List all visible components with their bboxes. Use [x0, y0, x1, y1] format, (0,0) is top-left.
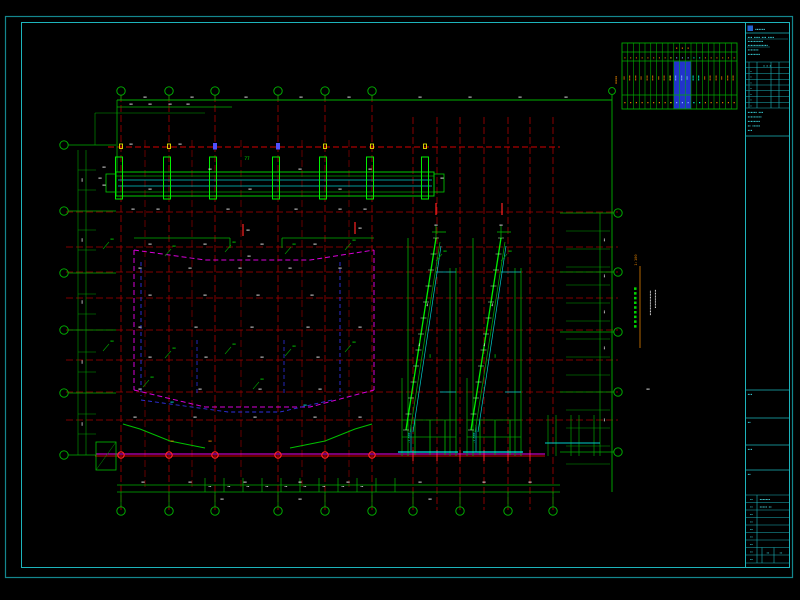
annotation-label: ▪▪	[244, 95, 248, 99]
annotation-label: ▪▪	[603, 346, 606, 350]
annotation-label: ▪▪	[102, 183, 106, 187]
annotation-label: ▪▪	[80, 300, 84, 304]
cell-text: ▪	[624, 101, 626, 105]
annotation-label: ▪▪	[303, 403, 307, 407]
tb-text: ▪▪	[750, 528, 753, 531]
summary-table: ▪▪▪▪▪▪▪▪▪▪▪▪▪▪▪▪▪▪▪▪▪▪▪▪▪▪▪▪▪▪▪▪▪▪▪▪▪▪▪▪…	[622, 43, 737, 109]
annotation-label: ▪▪	[188, 266, 192, 270]
cell-text: ▪▪▪	[674, 75, 678, 81]
cell-text: ▪	[693, 101, 695, 105]
cell-text: ▪▪▪	[645, 75, 649, 81]
annotation-label: ▪▪	[603, 274, 606, 278]
annotation-label: ▪▪	[440, 176, 444, 180]
tb-text: ▪▪	[780, 552, 783, 555]
annotation-label: ▪▪	[188, 480, 192, 484]
annotation-label: ▪▪	[248, 187, 252, 191]
annotation-label: ▪▪	[468, 95, 472, 99]
tb-text: ▪	[750, 104, 751, 107]
cell-text: ▪▪▪	[714, 75, 718, 81]
annotation-label: ▪▪	[204, 355, 208, 359]
cell-text: ▪	[727, 101, 729, 105]
annotation-label: ▪▪	[102, 165, 106, 169]
tb-text: ▪▪▪▪▪▪▪▪▪	[748, 116, 762, 119]
annotation-label: ▪▪	[226, 207, 230, 211]
tb-text: ▪▪	[767, 552, 770, 555]
annotation-label: ▪▪	[208, 167, 212, 171]
drawing-scale: 1:100	[633, 254, 638, 266]
annotation-label: ▪▪	[203, 293, 207, 297]
cell-text: ▪	[704, 101, 706, 105]
annotation-label: ▪▪	[418, 480, 422, 484]
support-marker	[213, 143, 217, 150]
annotation-label: ▪▪	[110, 237, 114, 241]
tb-text: ▪▪▪▪▪▪▪	[760, 498, 771, 501]
tb-text: ▪▪▪	[748, 448, 753, 451]
cell-text: ▪▪▪	[697, 75, 701, 81]
cell-text: ▪▪▪	[668, 75, 672, 81]
annotation-label: ▪▪	[143, 95, 147, 99]
annotation-label: ▪▪	[428, 354, 432, 358]
annotation-label: ▪▪	[603, 238, 606, 242]
annotation-label: ▪▪	[368, 167, 372, 171]
tb-text: ▪▪	[750, 543, 753, 546]
annotation-label: ▪▪	[156, 207, 160, 211]
tb-text: ▪▪▪▪▪▪▪▪	[748, 53, 761, 56]
drawing-title-vertical: ▪▪▪▪▪▪▪▪▪	[631, 286, 639, 328]
cell-text: ▪	[710, 101, 712, 105]
cell-text: ▪	[733, 101, 735, 105]
annotation-label: ▪▪	[133, 415, 137, 419]
tb-text: ▪▪▪▪▪▪▪▪▪▪	[748, 40, 764, 43]
cell-text: ▪	[681, 101, 683, 105]
annotation-label: ▪▪	[258, 387, 262, 391]
annotation-label: ▪▪	[260, 242, 264, 246]
tb-text: ▪▪	[750, 551, 753, 554]
tb-text: ▪	[750, 87, 751, 90]
tb-text: ▪▪▪	[748, 393, 753, 396]
annotation-label: ▪▪	[358, 415, 362, 419]
cell-text: ▪	[687, 46, 689, 50]
cell-text: ▪▪	[702, 76, 706, 80]
cell-text: ▪	[722, 101, 724, 105]
annotation-label: ▪▪	[138, 325, 142, 329]
annotation-label: ▪▪	[313, 415, 317, 419]
tb-text: ▪ ▪ ▪	[763, 65, 771, 68]
annotation-label: ▪▪	[288, 266, 292, 270]
cell-text: ▪	[716, 101, 718, 105]
tb-text: ▪▪ ▪▪▪▪▪	[748, 125, 761, 128]
cell-text: ▪▪▪	[628, 75, 632, 81]
annotation-label: ▪▪	[170, 439, 174, 443]
annotation-label: ▪▪	[358, 226, 362, 230]
tb-text: ▪	[750, 99, 751, 102]
annotation-label: ▪▪	[80, 360, 84, 364]
cell-text: ▪	[647, 101, 649, 105]
annotation-label: ▪▪	[131, 207, 135, 211]
tb-text: ▪▪▪▪▪ ▪▪	[760, 506, 773, 509]
annotation-label: ▪▪	[232, 342, 236, 346]
beam-mark: 77	[244, 156, 250, 162]
cell-text: ▪	[676, 46, 678, 50]
annotation-label: ▪▪	[294, 207, 298, 211]
annotation-label: ▪▪	[148, 355, 152, 359]
elevation-label-2: -1.500	[472, 432, 476, 443]
tb-text: ▪▪	[750, 521, 753, 524]
annotation-label: ▪▪	[338, 207, 342, 211]
cell-text: ▪	[670, 101, 672, 105]
annotation-label: ▪▪	[250, 325, 254, 329]
annotation-label: ▪▪	[138, 387, 142, 391]
annotation-label: ▪▪	[428, 497, 432, 501]
cell-text: ▪	[664, 101, 666, 105]
tb-text: ▪▪	[750, 513, 753, 516]
tb-text: ▪	[750, 93, 751, 96]
annotation-label: ▪▪	[186, 102, 190, 106]
annotation-label: ▪▪	[564, 95, 568, 99]
cell-text: ▪▪▪	[725, 75, 729, 81]
cell-text: ▪▪	[720, 76, 724, 80]
tb-text: ▪	[750, 76, 751, 79]
annotation-label: ▪▪	[129, 142, 133, 146]
annotation-label: ▪▪	[220, 497, 224, 501]
cell-text: ▪	[658, 101, 660, 105]
annotation-label: ▪▪	[193, 415, 197, 419]
tb-text: ▪▪▪▪▪▪ ▪▪▪	[748, 111, 764, 114]
annotation-label: ▪▪	[260, 377, 264, 381]
cell-text: ▪	[641, 101, 643, 105]
cell-text: ▪▪▪	[691, 75, 695, 81]
annotation-label: ▪▪	[299, 95, 303, 99]
annotation-label: ▪▪	[178, 142, 182, 146]
cell-text: ▪▪▪	[633, 75, 637, 81]
annotation-label: ▪▪	[352, 340, 356, 344]
annotation-label: ▪▪	[313, 242, 317, 246]
annotation-label: ▪▪	[347, 95, 351, 99]
tb-text: ▪	[750, 70, 751, 73]
annotation-label: ▪▪	[434, 223, 438, 227]
cell-text: ▪	[635, 101, 637, 105]
drawing-note-2: ▪▪▪▪▪▪▪▪▪▪▪▪	[654, 289, 657, 308]
cell-text: ▪▪▪	[731, 75, 735, 81]
annotation-label: ▪▪	[298, 497, 302, 501]
annotation-label: ▪▪	[246, 228, 250, 232]
elevation-label-1: -1.500	[407, 432, 411, 443]
annotation-label: ▪▪	[172, 346, 176, 350]
annotation-label: ▪▪	[253, 415, 257, 419]
cell-text: ▪▪	[622, 76, 626, 80]
annotation-label: ▪▪	[508, 249, 512, 253]
logo-icon	[748, 26, 754, 32]
tb-text: ▪▪▪ ▪▪▪▪ ▪▪▪ ▪▪▪▪	[748, 36, 775, 39]
annotation-label: ▪▪	[198, 387, 202, 391]
cell-text: ▪	[687, 101, 689, 105]
annotation-label: ▪▪	[260, 355, 264, 359]
drawing-note-1: ▪▪▪▪▪▪▪▪▪▪▪▪▪▪▪▪	[649, 290, 652, 315]
cell-text: ▪▪▪	[679, 75, 683, 81]
annotation-label: ▪▪	[232, 240, 236, 244]
tb-text: ▪▪	[750, 498, 753, 501]
logo-text: ▪▪▪▪▪▪	[755, 27, 765, 31]
tb-text: ▪▪	[750, 506, 753, 509]
annotation-label: ▪▪	[298, 480, 302, 484]
annotation-label: ▪▪	[518, 95, 522, 99]
annotation-label: ▪▪	[141, 480, 145, 484]
annotation-label: ▪▪	[318, 387, 322, 391]
annotation-label: ▪▪	[306, 325, 310, 329]
annotation-label: ▪▪	[98, 176, 102, 180]
annotation-label: ▪▪	[310, 293, 314, 297]
annotation-label: ▪▪	[208, 439, 212, 443]
annotation-label: ▪▪	[238, 266, 242, 270]
tb-text: ▪▪▪▪▪▪▪▪	[748, 120, 761, 123]
annotation-label: ▪▪	[168, 102, 172, 106]
cell-text: ▪	[681, 46, 683, 50]
annotation-label: ▪▪	[316, 355, 320, 359]
cell-text: ▪	[676, 101, 678, 105]
cell-text: ▪▪▪	[651, 75, 655, 81]
cell-text: ▪▪	[656, 76, 660, 80]
tb-text: ▪▪▪▪▪▪▪▪▪▪▪▪▪	[748, 44, 769, 47]
annotation-label: ▪▪	[203, 242, 207, 246]
cell-text: ▪	[653, 101, 655, 105]
annotation-label: ▪▪	[148, 187, 152, 191]
annotation-label: ▪▪	[172, 244, 176, 248]
cell-text: ▪▪	[685, 76, 689, 80]
tb-text: ▪▪	[750, 536, 753, 539]
tb-text: ▪	[750, 81, 751, 84]
annotation-label: ▪▪	[646, 387, 650, 391]
annotation-label: ▪▪	[292, 344, 296, 348]
annotation-label: ▪▪	[418, 95, 422, 99]
support-marker	[276, 143, 280, 150]
tb-text: ▪▪▪	[748, 129, 753, 132]
annotation-label: ▪▪	[482, 480, 486, 484]
annotation-label: ▪▪	[148, 242, 152, 246]
annotation-label: ▪▪	[499, 223, 503, 227]
annotation-label: ▪▪	[292, 242, 296, 246]
cad-drawing-canvas: ▪▪▪▪▪▪▪▪▪▪▪▪▪▪▪▪▪▪▪▪▪▪▪▪▪▪▪▪▪▪▪▪▪▪▪▪▪▪▪▪…	[0, 0, 800, 600]
annotation-label: ▪▪	[603, 418, 606, 422]
annotation-label: ▪▪	[80, 422, 84, 426]
annotation-label: ▪▪	[358, 325, 362, 329]
annotation-label: ▪▪	[352, 238, 356, 242]
annotation-label: ▪▪	[148, 102, 152, 106]
annotation-label: ▪▪	[363, 207, 367, 211]
tb-text: ▪▪	[748, 421, 752, 424]
tb-text: ▪▪	[748, 473, 752, 476]
annotation-label: ▪▪	[298, 167, 302, 171]
annotation-label: ▪▪	[247, 254, 251, 258]
cell-text: ▪▪▪	[662, 75, 666, 81]
annotation-label: ▪▪	[194, 325, 198, 329]
annotation-label: ▪▪	[528, 480, 532, 484]
cell-text: ▪▪	[639, 76, 643, 80]
cell-text: ▪▪▪	[708, 75, 712, 81]
annotation-label: ▪▪	[138, 266, 142, 270]
annotation-label: ▪▪	[243, 480, 247, 484]
annotation-label: ▪▪	[338, 187, 342, 191]
annotation-label: ▪▪	[129, 102, 133, 106]
cell-text: ▪	[699, 101, 701, 105]
annotation-label: ▪▪	[443, 249, 447, 253]
annotation-label: ▪▪	[148, 293, 152, 297]
tb-text: ▪▪▪▪▪▪▪	[748, 49, 759, 52]
annotation-label: ▪▪	[150, 375, 154, 379]
annotation-label: ▪▪	[110, 339, 114, 343]
annotation-label: ▪▪	[493, 354, 497, 358]
annotation-label: ▪▪	[170, 400, 174, 404]
cell-text: ▪	[630, 101, 632, 105]
annotation-label: ▪▪	[190, 95, 194, 99]
annotation-label: ▪▪	[603, 310, 606, 314]
annotation-label: ▪▪	[338, 266, 342, 270]
tb-text: ▪▪	[750, 558, 753, 561]
summary-table-left-label: ▪▪▪▪	[614, 76, 618, 84]
annotation-label: ▪▪	[80, 238, 84, 242]
annotation-label: ▪▪	[80, 178, 84, 182]
annotation-label: ▪▪	[346, 480, 350, 484]
annotation-label: ▪▪	[256, 293, 260, 297]
